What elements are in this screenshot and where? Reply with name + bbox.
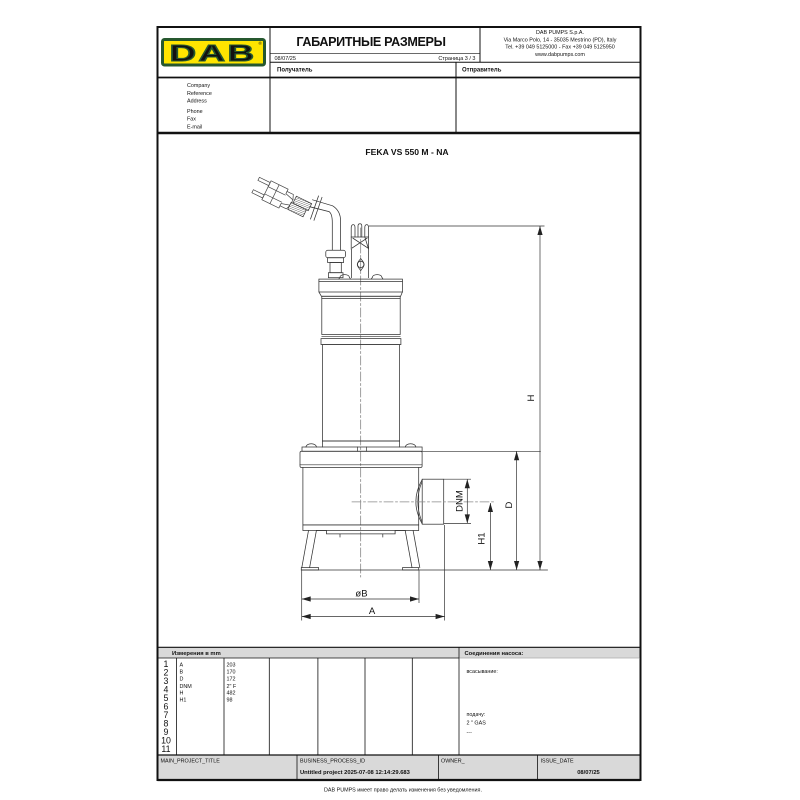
svg-text:DNM: DNM <box>180 684 193 690</box>
svg-text:DAB: DAB <box>170 40 257 66</box>
svg-text:MAIN_PROJECT_TITLE: MAIN_PROJECT_TITLE <box>161 759 221 765</box>
svg-text:D: D <box>180 677 184 683</box>
svg-text:H: H <box>526 394 537 401</box>
svg-text:H: H <box>180 691 184 697</box>
svg-text:DAB PUMPS имеет право делать и: DAB PUMPS имеет право делать изменения б… <box>324 788 482 794</box>
svg-text:Tel. +39 049 5125000 - Fax +39: Tel. +39 049 5125000 - Fax +39 049 51259… <box>505 45 614 51</box>
svg-text:Fax: Fax <box>187 117 196 123</box>
svg-text:FEKA VS 550 M - NA: FEKA VS 550 M - NA <box>365 147 448 157</box>
svg-text:Страница 3 / 3: Страница 3 / 3 <box>438 56 475 62</box>
svg-text:A: A <box>180 663 184 669</box>
svg-text:Address: Address <box>187 99 207 105</box>
svg-text:2 " GAS: 2 " GAS <box>467 721 487 727</box>
svg-text:Отправитель: Отправитель <box>462 68 502 74</box>
svg-text:A: A <box>369 606 376 617</box>
svg-text:11: 11 <box>161 744 170 754</box>
svg-text:E-mail: E-mail <box>187 124 202 130</box>
svg-text:ISSUE_DATE: ISSUE_DATE <box>541 759 575 765</box>
svg-text:H1: H1 <box>180 698 187 704</box>
svg-text:08/07/25: 08/07/25 <box>275 56 296 62</box>
svg-text:170: 170 <box>227 670 236 676</box>
svg-text:Phone: Phone <box>187 109 203 115</box>
svg-text:---: --- <box>467 730 473 736</box>
svg-text:203: 203 <box>227 663 236 669</box>
svg-text:2" F: 2" F <box>227 684 237 690</box>
svg-text:D: D <box>504 501 515 508</box>
svg-text:Company: Company <box>187 83 210 89</box>
svg-text:Reference: Reference <box>187 91 212 97</box>
svg-text:BUSINESS_PROCESS_ID: BUSINESS_PROCESS_ID <box>300 759 365 765</box>
svg-text:ГАБАРИТНЫЕ РАЗМЕРЫ: ГАБАРИТНЫЕ РАЗМЕРЫ <box>296 35 445 49</box>
svg-text:H1: H1 <box>477 532 488 544</box>
svg-text:Получатель: Получатель <box>277 68 313 74</box>
svg-text:øB: øB <box>355 589 367 600</box>
svg-text:Untitled project 2025-07-08 12: Untitled project 2025-07-08 12:14:29.683 <box>300 770 411 776</box>
svg-text:98: 98 <box>227 698 233 704</box>
svg-text:DAB PUMPS S.p.A.: DAB PUMPS S.p.A. <box>536 30 584 36</box>
svg-text:OWNER_: OWNER_ <box>441 759 466 765</box>
svg-text:08/07/25: 08/07/25 <box>577 770 600 776</box>
svg-text:B: B <box>180 670 184 676</box>
svg-text:DNM: DNM <box>455 490 466 512</box>
svg-text:Via Marco Polo, 14 - 35035 Mes: Via Marco Polo, 14 - 35035 Mestrino (PD)… <box>504 37 617 43</box>
svg-text:482: 482 <box>227 691 236 697</box>
svg-text:Соединения насоса:: Соединения насоса: <box>465 651 524 657</box>
svg-text:подачу:: подачу: <box>467 712 486 718</box>
svg-text:всасывание:: всасывание: <box>467 669 498 675</box>
svg-text:172: 172 <box>227 677 236 683</box>
svg-text:Измерения в mm: Измерения в mm <box>172 651 221 657</box>
svg-text:www.dabpumps.com: www.dabpumps.com <box>534 52 585 58</box>
